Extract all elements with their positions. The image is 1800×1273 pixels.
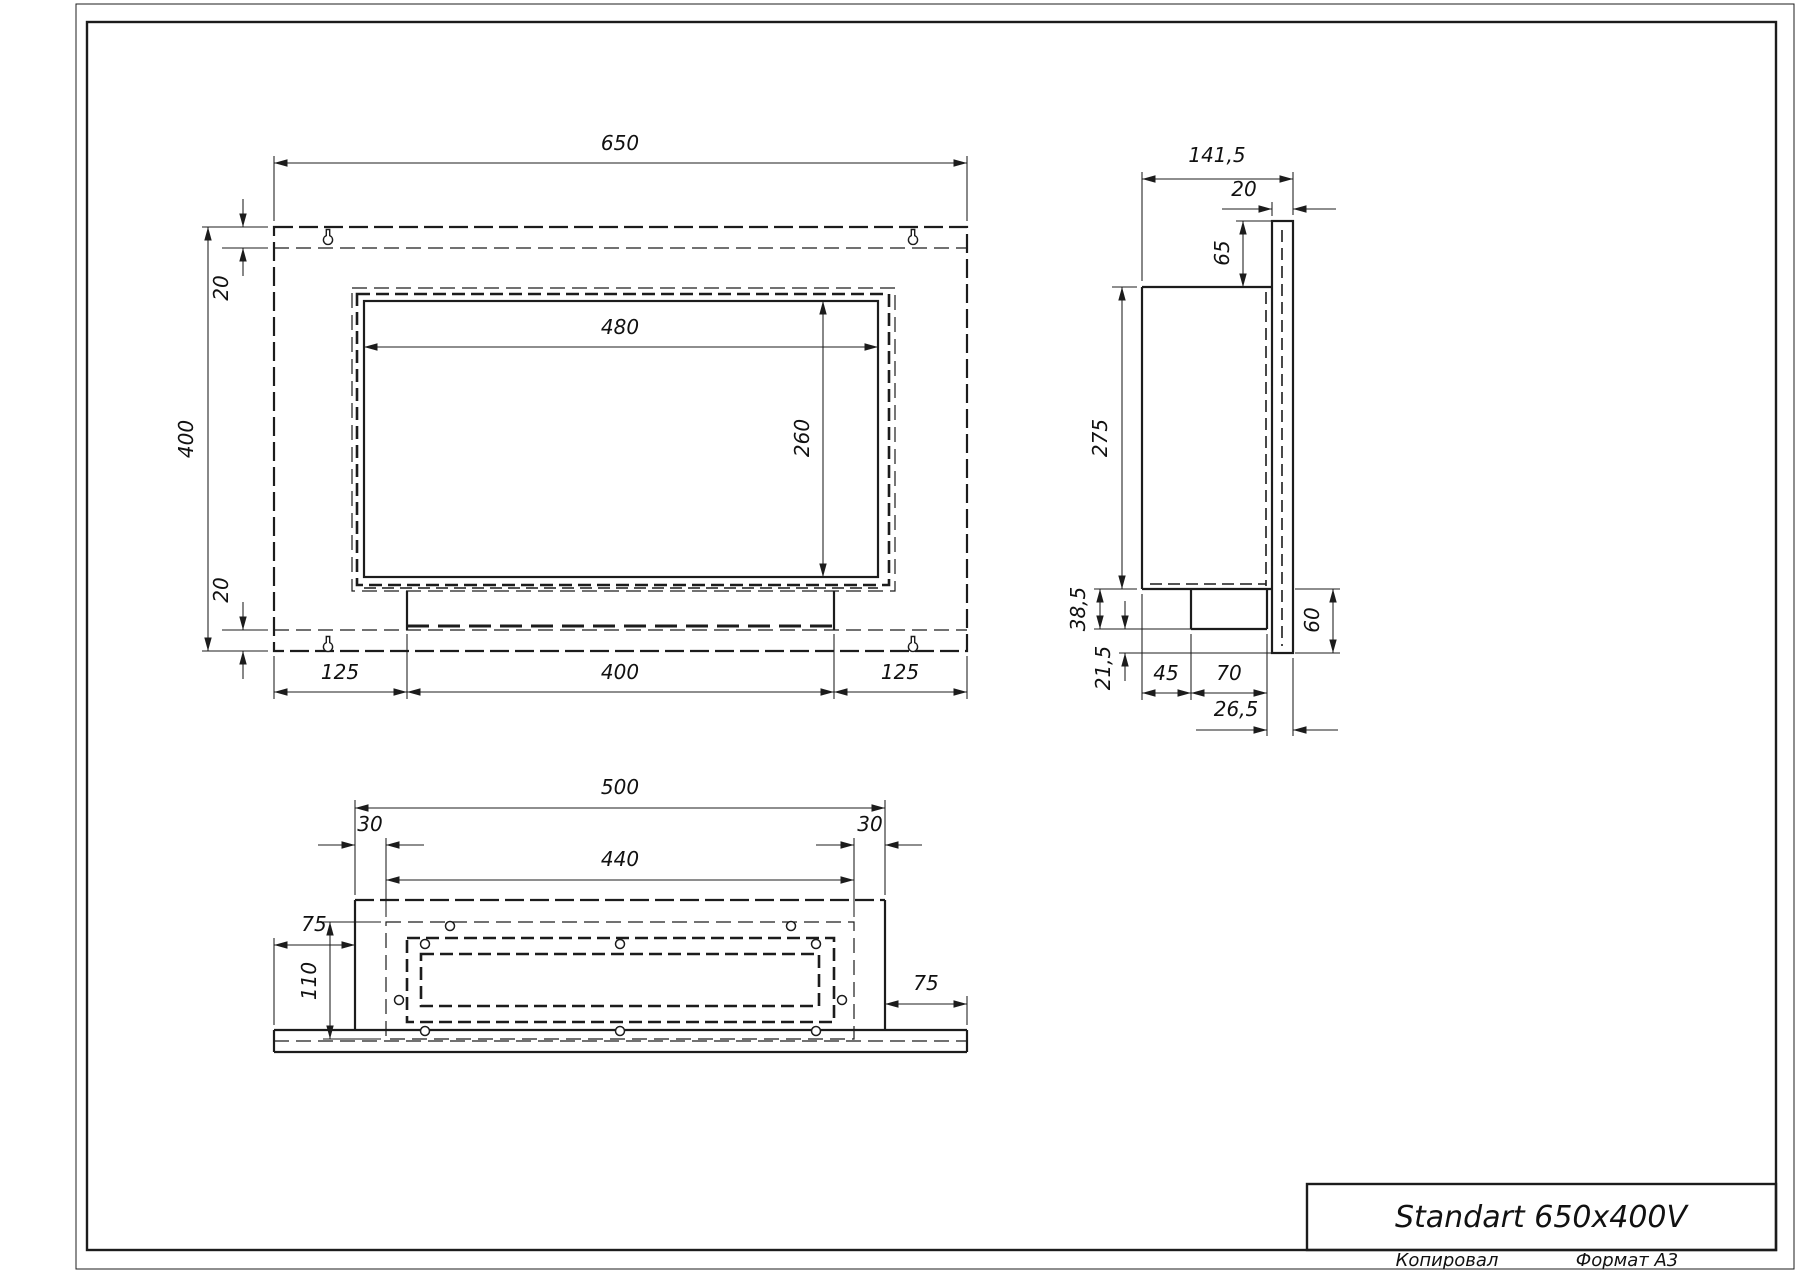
screw-hole	[616, 940, 625, 949]
dim-label: 125	[881, 660, 919, 684]
dim-label: 70	[1216, 661, 1241, 685]
dim-label: 480	[601, 315, 639, 339]
dim-label: 26,5	[1214, 697, 1259, 721]
screw-hole	[421, 940, 430, 949]
screw-hole	[812, 1027, 821, 1036]
dim-38-5: 38,5	[1066, 587, 1191, 632]
dim-440: 440	[386, 847, 854, 880]
dim-label: 125	[321, 660, 359, 684]
dim-label: 20	[1231, 177, 1256, 201]
dim-60: 60	[1295, 589, 1340, 653]
keyhole-slot-icon	[323, 637, 332, 652]
front-view: 650 400 20 20	[174, 131, 967, 699]
dim-label: 30	[357, 812, 382, 836]
dim-label: 45	[1153, 661, 1178, 685]
dim-label: 75	[913, 971, 938, 995]
dim-label: 440	[601, 847, 639, 871]
dim-110: 110	[297, 922, 381, 1039]
dim-21-5: 21,5	[1091, 601, 1272, 690]
drawing-sheet: 650 400 20 20	[0, 0, 1800, 1273]
dim-75-right: 75	[885, 971, 967, 1025]
keyhole-slot-icon	[323, 230, 332, 245]
format-label: Формат А3	[1576, 1250, 1679, 1271]
dim-label: 30	[857, 812, 882, 836]
screw-hole	[838, 996, 847, 1005]
dim-480-opening-width: 480	[364, 315, 878, 347]
dim-20-plate: 20	[1222, 177, 1336, 216]
dim-30-right: 30	[816, 812, 922, 917]
dim-65: 65	[1210, 221, 1272, 287]
drawing-title: Standart 650x400V	[1395, 1200, 1690, 1235]
dim-275: 275	[1088, 287, 1137, 589]
keyhole-slot-icon	[908, 637, 917, 652]
dim-45-70-chain: 45 70	[1142, 594, 1267, 700]
tray-outline-hidden	[407, 938, 834, 1022]
screw-hole	[421, 1027, 430, 1036]
dim-label: 110	[297, 962, 321, 1000]
dim-bottom-chain: 125 400 125	[274, 634, 967, 699]
dim-label: 65	[1210, 240, 1234, 265]
screw-hole	[616, 1027, 625, 1036]
screw-hole	[395, 996, 404, 1005]
dim-label: 38,5	[1066, 587, 1090, 632]
dim-20-bottom: 20	[209, 577, 268, 679]
dim-20-top: 20	[209, 199, 268, 301]
dim-label: 60	[1300, 607, 1324, 632]
dim-label: 500	[601, 775, 639, 799]
dim-label: 21,5	[1091, 646, 1115, 691]
burner-slot-hidden	[421, 954, 819, 1006]
dim-label: 141,5	[1188, 143, 1245, 167]
sheet-border	[76, 4, 1794, 1269]
bottom-view: 500 30 30 440 75	[274, 775, 967, 1052]
screw-hole	[446, 922, 455, 931]
dim-label: 400	[174, 420, 198, 458]
dim-650: 650	[274, 131, 967, 221]
dim-label: 400	[601, 660, 639, 684]
drawing-frame	[87, 22, 1776, 1250]
dim-label: 275	[1088, 419, 1112, 457]
copied-by-label: Копировал	[1396, 1250, 1499, 1271]
title-block: Standart 650x400V Копировал Формат А3	[1307, 1184, 1776, 1271]
dim-500: 500	[355, 775, 885, 895]
dim-label: 75	[301, 912, 326, 936]
screw-hole	[787, 922, 796, 931]
dim-label: 650	[601, 131, 639, 155]
dim-label: 260	[790, 419, 814, 457]
dim-30-left: 30	[318, 812, 424, 917]
dim-label: 20	[209, 275, 233, 300]
side-view: 141,5 20 65 275 38,5	[1066, 143, 1340, 736]
dim-260-opening-height: 260	[790, 301, 823, 577]
screw-hole	[812, 940, 821, 949]
keyhole-slot-icon	[908, 230, 917, 245]
technical-drawing: 650 400 20 20	[0, 0, 1800, 1273]
dim-label: 20	[209, 577, 233, 602]
